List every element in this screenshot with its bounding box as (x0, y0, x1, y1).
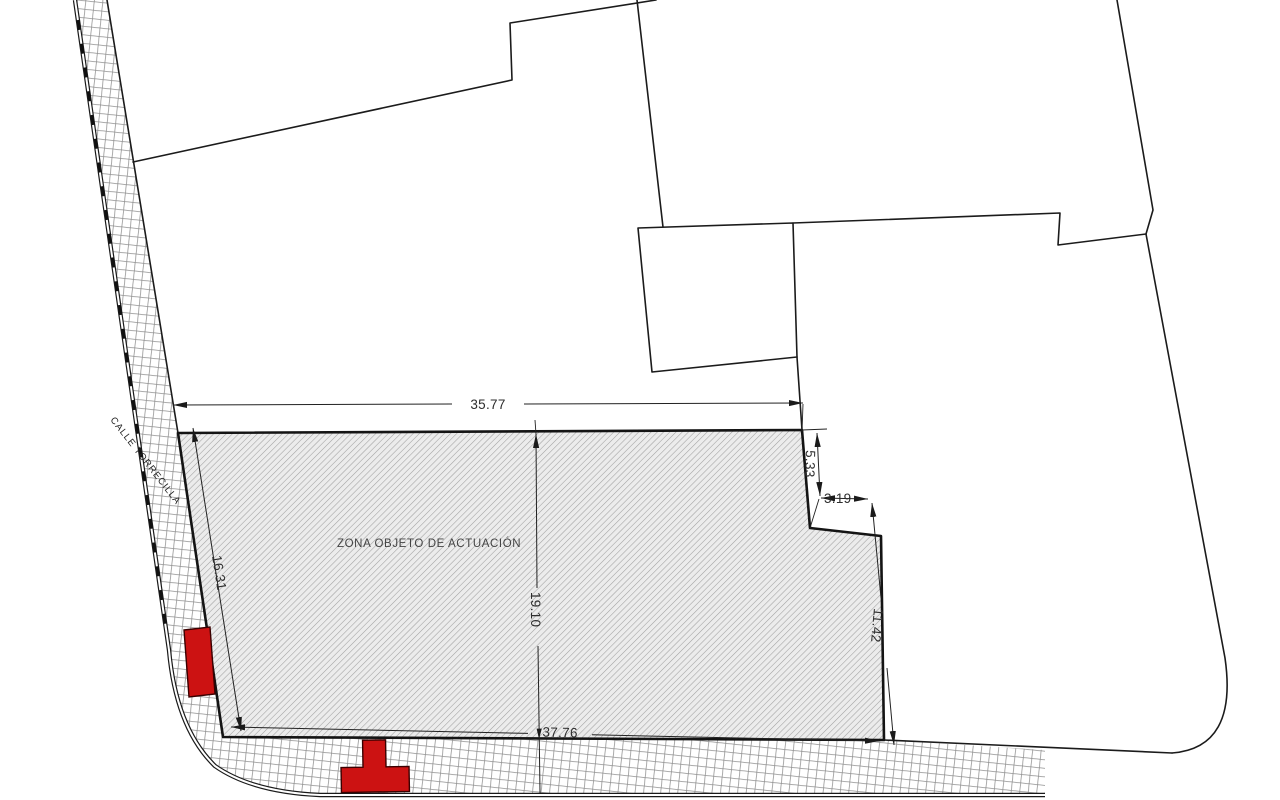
red-marker-street-edge (184, 627, 215, 697)
dimension-step-width: 3.19 (810, 491, 868, 528)
zone-polygon (178, 430, 884, 740)
dim-step-height-value: 5.33 (802, 450, 818, 478)
dim-top-width-value: 35.77 (470, 397, 505, 412)
parcel-boundary-east (1117, 0, 1227, 753)
dim-right-depth-value: 11.42 (868, 608, 886, 643)
dimension-top-width: 35.77 (173, 397, 803, 432)
site-plan-canvas: 35.77 16.31 19.10 37.76 5.33 3.19 11.42 … (0, 0, 1280, 800)
parcel-small-quad (638, 223, 797, 372)
zone-label: ZONA OBJETO DE ACTUACIÓN (337, 537, 521, 550)
parcel-boundary-ne (793, 213, 1146, 245)
dim-bottom-width-value: 37.76 (542, 725, 578, 741)
parcel-boundary-nw (133, 0, 656, 162)
parcel-quad-connector (797, 357, 802, 430)
site-plan-page: 35.77 16.31 19.10 37.76 5.33 3.19 11.42 … (0, 0, 1280, 800)
parcel-boundary-n-vertical (637, 0, 663, 227)
dim-step-width-value: 3.19 (824, 491, 851, 506)
dim-mid-depth-value: 19.10 (528, 592, 543, 627)
